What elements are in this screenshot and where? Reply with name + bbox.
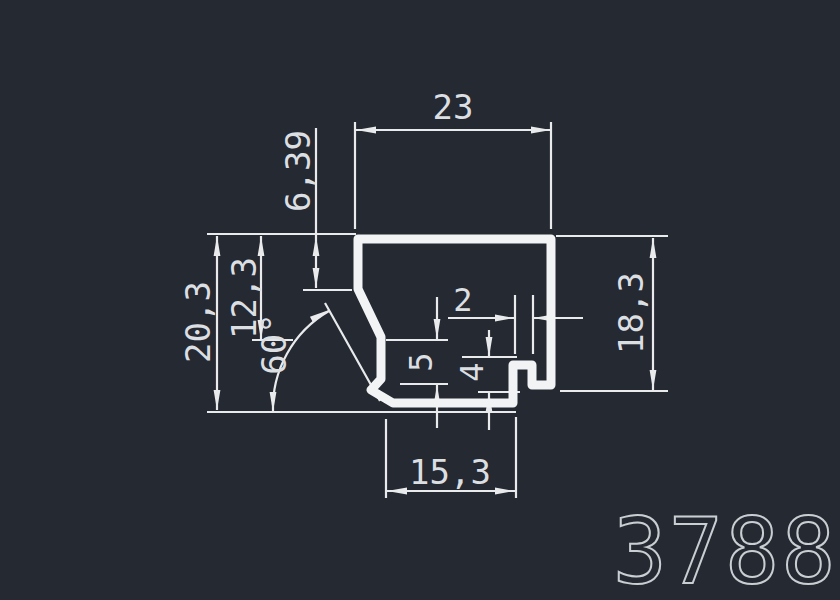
dim-wall-slot: 2	[453, 281, 472, 319]
dim-left-total: 20,3	[178, 281, 218, 363]
cad-viewport: 23 6,39 12,3 20,3 60° 2 5 4 18,3 15,3 37…	[0, 0, 840, 600]
dim-right-height: 18,3	[611, 272, 651, 354]
dim-top-left-offset: 6,39	[278, 130, 318, 212]
dim-angle: 60°	[254, 313, 294, 374]
dim-bottom-width: 15,3	[409, 452, 491, 492]
part-number: 3788	[613, 499, 838, 600]
dim-top-width: 23	[433, 87, 474, 127]
cad-drawing-canvas: 23 6,39 12,3 20,3 60° 2 5 4 18,3 15,3 37…	[0, 0, 840, 600]
dim-hook-depth: 4	[453, 362, 491, 381]
dim-left-step: 5	[402, 352, 440, 371]
